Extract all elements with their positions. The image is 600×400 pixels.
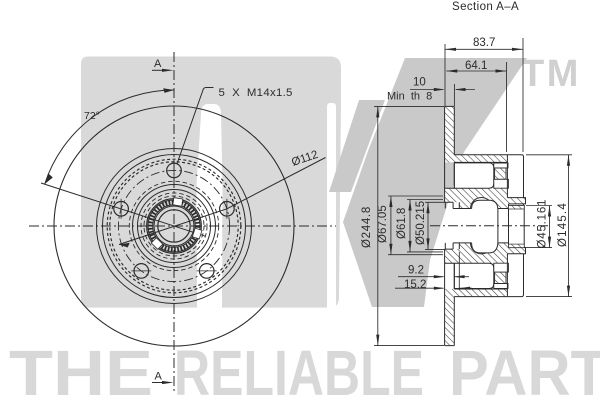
svg-text:Ø67.05: Ø67.05 — [377, 205, 389, 243]
svg-text:5 X M14x1.5: 5 X M14x1.5 — [219, 87, 293, 99]
svg-text:83.7: 83.7 — [473, 37, 495, 49]
svg-text:Ø145.4: Ø145.4 — [557, 202, 569, 247]
svg-text:9.2: 9.2 — [408, 265, 424, 277]
svg-text:64.1: 64.1 — [465, 60, 487, 72]
svg-text:Ø61.8: Ø61.8 — [396, 208, 408, 239]
svg-text:Ø50.215: Ø50.215 — [415, 201, 427, 245]
svg-text:RELIABLE: RELIABLE — [174, 337, 424, 400]
svg-text:Min th 8: Min th 8 — [387, 91, 432, 103]
svg-text:Ø45.161: Ø45.161 — [537, 199, 549, 249]
svg-text:PART: PART — [449, 337, 600, 400]
svg-text:72°: 72° — [84, 110, 100, 122]
svg-text:10: 10 — [413, 77, 426, 89]
svg-text:15.2: 15.2 — [404, 279, 426, 291]
svg-text:A: A — [155, 371, 163, 383]
svg-text:A: A — [154, 58, 162, 70]
svg-text:Section A–A: Section A–A — [452, 1, 519, 13]
svg-text:TM: TM — [521, 53, 581, 95]
svg-text:THE: THE — [9, 337, 153, 400]
svg-text:Ø244.8: Ø244.8 — [361, 206, 373, 248]
